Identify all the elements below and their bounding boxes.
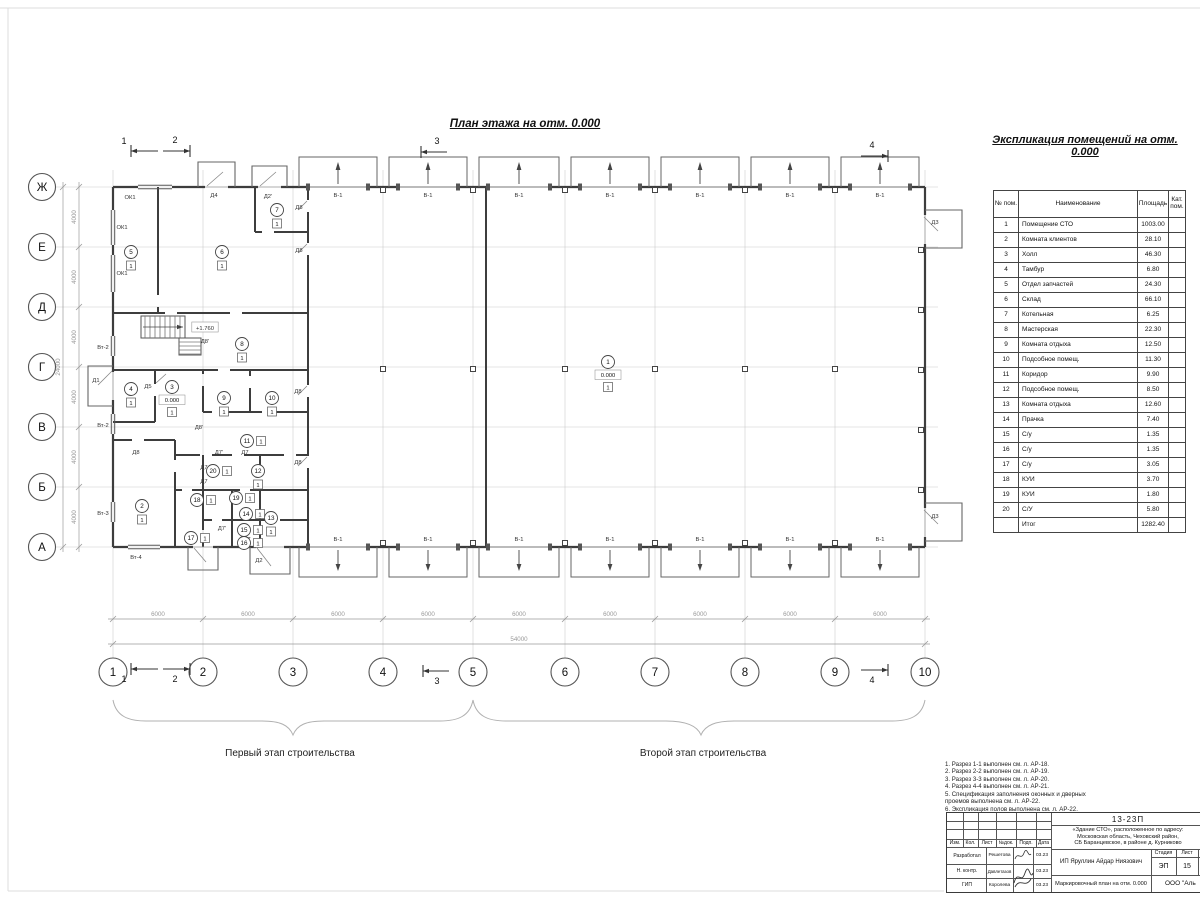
dim-text: 6000 xyxy=(603,611,617,618)
gate-arrowhead xyxy=(698,564,703,571)
dim-text: 6000 xyxy=(783,611,797,618)
tb-name-developer: Решетова xyxy=(986,847,1013,864)
gate-post xyxy=(638,544,642,551)
tb-role-ncontrol: Н. контр. xyxy=(948,864,986,878)
floor-type: 1 xyxy=(220,264,223,270)
tb-role-gip: ГИП xyxy=(948,878,986,892)
tb-sheet-value: 15 xyxy=(1176,857,1198,875)
opening-label: Вт-2 xyxy=(97,423,108,429)
level-value: 0.000 xyxy=(601,373,616,379)
entrance-bumps xyxy=(88,162,962,574)
section-number: 2 xyxy=(172,674,177,684)
gate-arrowhead xyxy=(878,162,883,170)
dim-text: 6000 xyxy=(873,611,887,618)
dim-text: 4000 xyxy=(71,510,78,524)
signature-gip xyxy=(1011,865,1035,891)
drawing-sheet: 6000600060006000600060006000600060005400… xyxy=(0,0,1200,900)
opening-label: Д2' xyxy=(264,194,272,200)
opening-label: Д8' xyxy=(195,425,203,431)
section-arrowhead xyxy=(131,149,137,153)
tb-col-izm: Изм. xyxy=(947,839,963,847)
axis-number: 6 xyxy=(562,667,568,679)
room-number: 3 xyxy=(170,384,174,391)
gate-post xyxy=(486,184,490,191)
tb-col-list: Лист xyxy=(978,839,996,847)
gate-arrowhead xyxy=(788,564,793,571)
tb-col-ndok: №док. xyxy=(996,839,1016,847)
tb-date-gip: 03.23 xyxy=(1033,878,1051,892)
gate-label: В-1 xyxy=(695,193,704,199)
dim-text: 4000 xyxy=(71,330,78,344)
room-number: 2 xyxy=(140,503,144,510)
gate-label: В-1 xyxy=(514,193,523,199)
gate-arrowhead xyxy=(608,564,613,571)
opening-label: Вт-4 xyxy=(130,555,142,561)
gate-arrowhead xyxy=(698,162,703,170)
gate-post xyxy=(578,544,582,551)
explication-row: 15С/у1.35 xyxy=(994,428,1186,443)
wall-pilaster xyxy=(743,188,748,193)
opening-label: Д8 xyxy=(295,205,302,211)
opening-label: Д7' xyxy=(215,450,223,456)
gate-post xyxy=(908,544,912,551)
gate-arrowhead xyxy=(788,162,793,170)
room-number: 17 xyxy=(187,535,195,542)
note-line: 3. Разрез 3-3 выполнен см. л. АР-20. xyxy=(945,776,1197,783)
gate-post xyxy=(818,184,822,191)
explication-row: 12Подсобное помещ.8.50 xyxy=(994,383,1186,398)
gate-post xyxy=(848,544,852,551)
gate-post xyxy=(366,184,370,191)
section-arrowhead xyxy=(131,667,137,671)
explication-row: 7Котельная6.25 xyxy=(994,308,1186,323)
section-arrowhead xyxy=(421,150,427,154)
gate-post xyxy=(668,184,672,191)
dim-text: 4000 xyxy=(71,270,78,284)
wall-pilaster xyxy=(563,188,568,193)
gate-post xyxy=(638,184,642,191)
floor-type: 1 xyxy=(248,496,251,502)
section-number: 3 xyxy=(434,136,439,146)
tb-date-ncontrol: 03.23 xyxy=(1033,864,1051,878)
gate-arrowhead xyxy=(426,564,431,571)
signature-developer xyxy=(1013,849,1033,863)
floor-type: 1 xyxy=(225,469,228,475)
explication-row: 1Помещение СТО1003.00 xyxy=(994,218,1186,233)
walls xyxy=(88,162,962,574)
room-number: 16 xyxy=(240,540,248,547)
tb-date-developer: 03.23 xyxy=(1033,847,1051,864)
opening-label: Д8 xyxy=(132,450,139,456)
explication-row: 5Отдел запчастей24.30 xyxy=(994,278,1186,293)
dim-text: 6000 xyxy=(421,611,435,618)
wall-pilaster xyxy=(919,428,924,433)
room-number: 18 xyxy=(193,497,201,504)
explication-row: 13Комната отдыха12.60 xyxy=(994,398,1186,413)
floor-type: 1 xyxy=(259,439,262,445)
opening-label: Д8 xyxy=(295,248,302,254)
axis-number: 1 xyxy=(110,667,116,679)
explication-row: 19КУИ1.80 xyxy=(994,488,1186,503)
tb-col-data: Дата xyxy=(1036,839,1051,847)
note-line: 2. Разрез 2-2 выполнен см. л. АР-19. xyxy=(945,768,1197,775)
gate-label: В-1 xyxy=(333,537,342,543)
opening-label: Д1 xyxy=(92,378,99,384)
col-number: № пом. xyxy=(994,191,1019,218)
wall-pilaster xyxy=(833,541,838,546)
axis-number: 4 xyxy=(380,667,387,679)
room-number: 12 xyxy=(254,468,262,475)
floor-type: 1 xyxy=(256,528,259,534)
tb-sheet-title: Маркировочный план на отм. 0.000 xyxy=(1051,875,1151,892)
explication-row: 18КУИ3.70 xyxy=(994,473,1186,488)
wall-pilaster xyxy=(563,541,568,546)
gate-post xyxy=(668,544,672,551)
axis-bubbles: 12345678910ЖЕДГВБА xyxy=(29,174,940,687)
gate-post xyxy=(366,544,370,551)
section-number: 4 xyxy=(869,140,874,150)
tb-project: «Здание СТО», расположенное по адресу: М… xyxy=(1051,825,1200,849)
floor-type: 1 xyxy=(129,264,132,270)
gate-label: В-1 xyxy=(423,193,432,199)
floor-type: 1 xyxy=(269,530,272,536)
gate-arrowhead xyxy=(336,162,341,170)
axis-letter: Д xyxy=(38,302,46,314)
dim-text: 4000 xyxy=(71,390,78,404)
wall-pilaster xyxy=(743,541,748,546)
section-marks: 12341234 xyxy=(121,135,888,686)
floor-type: 1 xyxy=(209,498,212,504)
section-arrowhead xyxy=(882,154,888,158)
dim-text: 6000 xyxy=(151,611,165,618)
col-area: Площадь xyxy=(1138,191,1169,218)
tb-stage-value: ЭП xyxy=(1151,857,1176,875)
floor-type: 1 xyxy=(140,518,143,524)
floor-type: 1 xyxy=(222,410,225,416)
tb-col-podp: Подп. xyxy=(1016,839,1036,847)
room-number: 13 xyxy=(267,515,275,522)
col-name: Наименование xyxy=(1019,191,1138,218)
col-category: Кат. пом. xyxy=(1169,191,1186,218)
dim-text: 6000 xyxy=(241,611,255,618)
explication-row: 16С/у1.35 xyxy=(994,443,1186,458)
opening-label: ОК1 xyxy=(116,225,127,231)
explication-row: 17С/у3.05 xyxy=(994,458,1186,473)
explication-row: 8Мастерская22.30 xyxy=(994,323,1186,338)
dim-text: 6000 xyxy=(331,611,345,618)
gate-label: В-1 xyxy=(605,193,614,199)
section-arrowhead xyxy=(423,669,429,673)
column xyxy=(381,367,386,372)
gate-arrowhead xyxy=(426,162,431,170)
room-number: 20 xyxy=(209,468,217,475)
dim-text: 4000 xyxy=(71,210,78,224)
gate-label: В-1 xyxy=(423,537,432,543)
opening-label: Вт-3 xyxy=(97,511,108,517)
stage-braces xyxy=(113,700,925,735)
floor-type: 1 xyxy=(129,401,132,407)
wall-pilaster xyxy=(919,488,924,493)
room-number: 6 xyxy=(220,249,224,256)
gate-label: В-1 xyxy=(695,537,704,543)
level-value: 0.000 xyxy=(165,398,180,404)
wall-pilaster xyxy=(381,541,386,546)
gate-arrowhead xyxy=(878,564,883,571)
room-number: 14 xyxy=(242,511,250,518)
axis-letter: Ж xyxy=(37,182,48,194)
opening-label: Д8 xyxy=(294,460,301,466)
room-number: 5 xyxy=(129,249,133,256)
gate-post xyxy=(848,184,852,191)
opening-label: Д7 xyxy=(241,450,248,456)
axis-letter: Б xyxy=(38,482,46,494)
tb-company: ООО "Аль xyxy=(1151,875,1200,892)
opening-label: Д3 xyxy=(931,514,938,520)
floor-type: 1 xyxy=(170,410,173,416)
section-number: 1 xyxy=(121,136,126,146)
notes-list: 1. Разрез 1-1 выполнен см. л. АР-18.2. Р… xyxy=(945,761,1197,813)
column xyxy=(743,367,748,372)
wall-pilaster xyxy=(471,188,476,193)
room-number: 1 xyxy=(606,359,610,366)
column xyxy=(471,367,476,372)
gate-label: В-1 xyxy=(785,193,794,199)
gate-arrowhead xyxy=(608,162,613,170)
opening-label: Д2 xyxy=(255,558,262,564)
axis-number: 7 xyxy=(652,667,658,679)
gate-arrowhead xyxy=(336,564,341,571)
floor-type: 1 xyxy=(240,356,243,362)
section-arrowhead xyxy=(184,149,190,153)
tb-name-ncontrol: Давлетазов xyxy=(986,864,1013,878)
gate-label: В-1 xyxy=(514,537,523,543)
opening-label: Д4 xyxy=(210,193,218,199)
axis-number: 5 xyxy=(470,667,476,679)
explication-row: 20С/У5.80 xyxy=(994,503,1186,518)
axis-number: 8 xyxy=(742,667,748,679)
floor-type: 1 xyxy=(258,512,261,518)
dim-total-text: 24000 xyxy=(55,358,62,376)
tb-name-gip: Королева xyxy=(986,878,1013,892)
axis-number: 9 xyxy=(832,667,838,679)
tb-stage-label: Стадия xyxy=(1151,849,1176,857)
opening-label: Вт-2 xyxy=(97,345,108,351)
explication-row: 3Холл46.30 xyxy=(994,248,1186,263)
explication-title: Экспликация помещений на отм. 0.000 xyxy=(978,134,1192,158)
gate-label: В-1 xyxy=(785,537,794,543)
wall-pilaster xyxy=(919,308,924,313)
title-block: Изм. Кол. Лист №док. Подп. Дата Разработ… xyxy=(946,812,1200,893)
axis-letter: Г xyxy=(39,362,46,374)
gate-label: В-1 xyxy=(333,193,342,199)
wall-pilaster xyxy=(833,188,838,193)
wall-pilaster xyxy=(653,541,658,546)
room-number: 11 xyxy=(244,438,251,445)
stage2-label: Второй этап строительства xyxy=(608,748,798,759)
gate-post xyxy=(728,544,732,551)
explication-row: 9Комната отдыха12.50 xyxy=(994,338,1186,353)
gate-post xyxy=(578,184,582,191)
note-line: 4. Разрез 4-4 выполнен см. л. АР-21. xyxy=(945,783,1197,790)
opening-label: ОК1 xyxy=(116,271,127,277)
tb-sheet-label: Лист xyxy=(1176,849,1198,857)
tb-doc-number: 13-23П xyxy=(1051,813,1200,825)
opening-label: Д3 xyxy=(931,220,938,226)
room-number: 10 xyxy=(268,395,276,402)
floor-type: 1 xyxy=(275,222,278,228)
explication-row: 10Подсобное помещ.11.30 xyxy=(994,353,1186,368)
opening-label: Д8 xyxy=(294,389,301,395)
axis-letter: В xyxy=(38,422,46,434)
room-markers: 10.00012130.0001415161718191101111121131… xyxy=(125,204,622,550)
room-number: 4 xyxy=(129,386,133,393)
floor-type: 1 xyxy=(256,541,259,547)
room-number: 15 xyxy=(240,527,248,534)
gate-label: В-1 xyxy=(875,193,884,199)
column xyxy=(653,367,658,372)
axis-letter: Е xyxy=(38,242,46,254)
axis-number: 2 xyxy=(200,667,206,679)
axis-letter: А xyxy=(38,542,46,554)
dim-text: 4000 xyxy=(71,450,78,464)
gate-post xyxy=(306,184,310,191)
stage1-label: Первый этап строительства xyxy=(200,748,380,759)
gate-post xyxy=(306,544,310,551)
explication-row: 6Склад66.10 xyxy=(994,293,1186,308)
note-line: 1. Разрез 1-1 выполнен см. л. АР-18. xyxy=(945,761,1197,768)
gate-post xyxy=(728,184,732,191)
gate-arrowhead xyxy=(517,162,522,170)
gate-post xyxy=(908,184,912,191)
structural-columns xyxy=(381,188,924,546)
opening-label: +1.760 xyxy=(196,326,214,332)
room-number: 8 xyxy=(240,341,244,348)
column xyxy=(563,367,568,372)
section-number: 2 xyxy=(172,135,177,145)
dim-text: 6000 xyxy=(693,611,707,618)
column xyxy=(833,367,838,372)
gate-post xyxy=(758,184,762,191)
tb-client: ИП Яруллин Айдар Ниязович xyxy=(1051,849,1151,875)
section-number: 1 xyxy=(121,674,126,684)
section-arrowhead xyxy=(882,668,888,672)
gate-post xyxy=(758,544,762,551)
wall-pilaster xyxy=(919,248,924,253)
wall-pilaster xyxy=(471,541,476,546)
wall-pilaster xyxy=(919,368,924,373)
axis-grid-lines xyxy=(56,170,938,658)
dim-total-text: 54000 xyxy=(510,636,528,643)
gate-arrowhead xyxy=(517,564,522,571)
wall-pilaster xyxy=(653,188,658,193)
axis-number: 10 xyxy=(919,667,932,679)
explication-table: № пом. Наименование Площадь Кат. пом. 1П… xyxy=(993,190,1186,533)
floor-type: 1 xyxy=(256,483,259,489)
axis-number: 3 xyxy=(290,667,296,679)
section-number: 3 xyxy=(434,676,439,686)
room-number: 19 xyxy=(232,495,240,502)
note-line: 5. Спецификация заполнения оконных и две… xyxy=(945,791,1197,806)
tb-col-kol: Кол. xyxy=(963,839,978,847)
explication-row: 11Коридор9.90 xyxy=(994,368,1186,383)
explication-header-row: № пом. Наименование Площадь Кат. пом. xyxy=(994,191,1186,218)
floor-type: 1 xyxy=(270,410,273,416)
gate-post xyxy=(818,544,822,551)
room-number: 9 xyxy=(222,395,226,402)
room-number: 7 xyxy=(275,207,279,214)
opening-label: ОК1 xyxy=(124,195,135,201)
gate-post xyxy=(548,544,552,551)
explication-row: Итог1282.40 xyxy=(994,518,1186,533)
wall-pilaster xyxy=(381,188,386,193)
opening-label: Д7 xyxy=(200,479,207,485)
opening-label: Д8' xyxy=(201,339,209,345)
floor-type: 1 xyxy=(203,536,206,542)
gate-post xyxy=(456,544,460,551)
tb-role-developer: Разработал xyxy=(948,847,986,864)
floor-type: 1 xyxy=(606,385,609,391)
gate-label: В-1 xyxy=(875,537,884,543)
plan-title: План этажа на отм. 0.000 xyxy=(390,118,660,130)
section-number: 4 xyxy=(869,675,874,685)
door-leaves xyxy=(98,172,938,566)
explication-row: 14Прачка7.40 xyxy=(994,413,1186,428)
opening-label: Д7' xyxy=(218,526,226,532)
gate-post xyxy=(548,184,552,191)
explication-row: 4Тамбур6.80 xyxy=(994,263,1186,278)
dim-text: 6000 xyxy=(512,611,526,618)
opening-label: Д5 xyxy=(144,384,151,390)
gate-post xyxy=(456,184,460,191)
gate-post xyxy=(486,544,490,551)
gate-label: В-1 xyxy=(605,537,614,543)
explication-row: 2Комната клиентов28.10 xyxy=(994,233,1186,248)
gate-post xyxy=(396,544,400,551)
gate-post xyxy=(396,184,400,191)
